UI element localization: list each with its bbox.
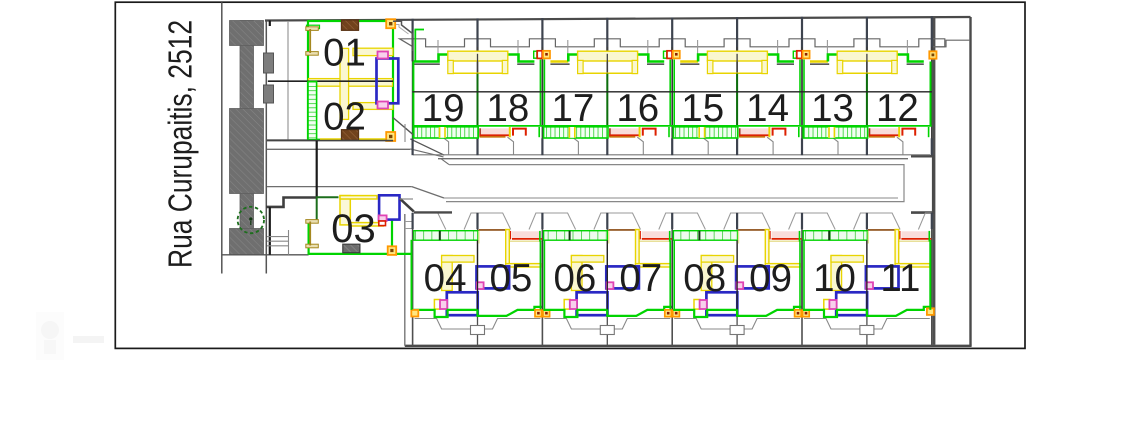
svg-text:13: 13 xyxy=(811,87,854,130)
svg-text:07: 07 xyxy=(619,257,662,300)
svg-text:17: 17 xyxy=(551,87,594,130)
svg-text:14: 14 xyxy=(746,87,789,130)
svg-text:05: 05 xyxy=(489,257,532,300)
svg-text:19: 19 xyxy=(422,87,465,130)
svg-text:15: 15 xyxy=(681,87,724,130)
svg-text:18: 18 xyxy=(486,87,529,130)
svg-text:02: 02 xyxy=(323,96,366,139)
svg-text:11: 11 xyxy=(880,257,920,300)
svg-text:10: 10 xyxy=(813,257,856,300)
svg-text:09: 09 xyxy=(749,257,792,300)
svg-text:01: 01 xyxy=(323,32,366,75)
svg-text:04: 04 xyxy=(424,257,467,300)
svg-text:Rua Curupaitis, 2512: Rua Curupaitis, 2512 xyxy=(163,20,200,268)
svg-text:08: 08 xyxy=(683,257,726,300)
svg-text:03: 03 xyxy=(331,207,376,251)
svg-text:06: 06 xyxy=(553,257,596,300)
svg-text:12: 12 xyxy=(876,87,919,130)
svg-text:16: 16 xyxy=(616,87,659,130)
